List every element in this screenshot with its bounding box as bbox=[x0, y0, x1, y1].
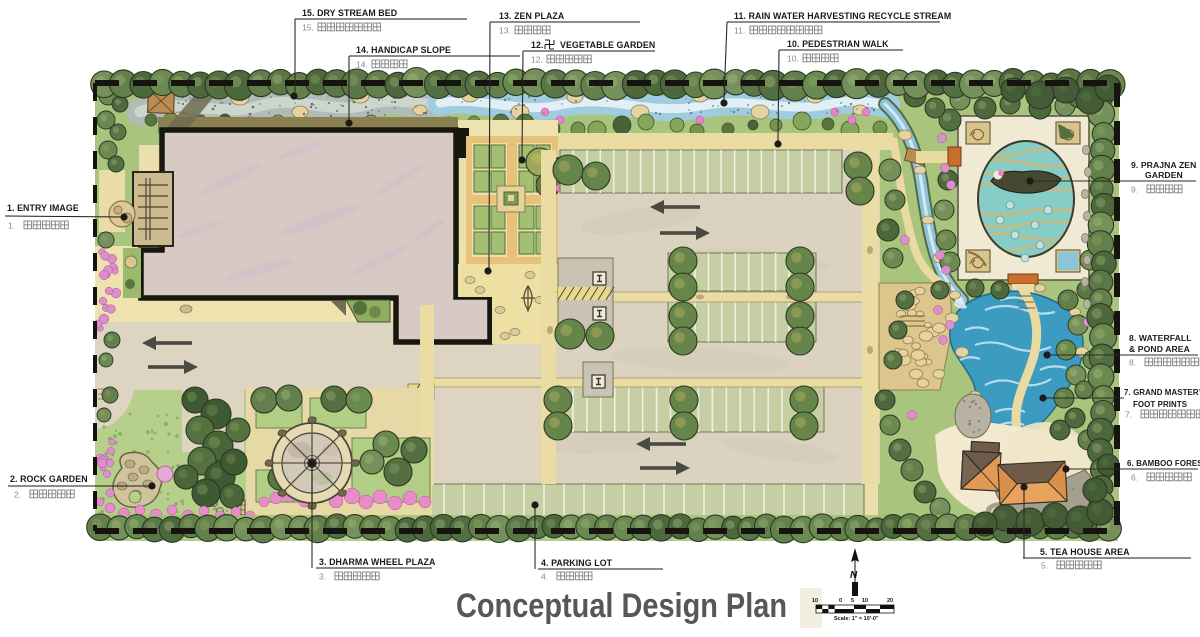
svg-text:1. ENTRY IMAGE: 1. ENTRY IMAGE bbox=[7, 203, 79, 213]
svg-text:6.: 6. bbox=[1131, 473, 1138, 483]
svg-text:15. DRY STREAM BED: 15. DRY STREAM BED bbox=[302, 8, 397, 18]
svg-text:& POND AREA: & POND AREA bbox=[1129, 344, 1190, 354]
svg-text:N: N bbox=[850, 570, 858, 581]
svg-text:Conceptual Design Plan: Conceptual Design Plan bbox=[456, 587, 787, 625]
svg-text:11. RAIN WATER HARVESTING RECY: 11. RAIN WATER HARVESTING RECYCLE STREAM bbox=[734, 11, 951, 21]
svg-text:10.: 10. bbox=[787, 54, 799, 64]
svg-text:2.: 2. bbox=[14, 490, 21, 500]
svg-text:10. PEDESTRIAN WALK: 10. PEDESTRIAN WALK bbox=[787, 39, 889, 49]
svg-text:FOOT PRINTS: FOOT PRINTS bbox=[1133, 400, 1187, 409]
svg-text:VEGETABLE GARDEN: VEGETABLE GARDEN bbox=[560, 40, 655, 50]
svg-text:9.: 9. bbox=[1131, 185, 1138, 195]
svg-text:3. DHARMA WHEEL PLAZA: 3. DHARMA WHEEL PLAZA bbox=[319, 557, 436, 567]
svg-text:8.: 8. bbox=[1129, 358, 1136, 368]
svg-text:10: 10 bbox=[812, 598, 818, 604]
svg-text:2. ROCK GARDEN: 2. ROCK GARDEN bbox=[10, 474, 88, 484]
svg-text:6. BAMBOO FOREST: 6. BAMBOO FOREST bbox=[1127, 459, 1200, 468]
svg-text:GARDEN: GARDEN bbox=[1145, 170, 1183, 180]
svg-text:4.: 4. bbox=[541, 572, 548, 582]
svg-text:12.: 12. bbox=[531, 40, 544, 50]
svg-text:5.: 5. bbox=[1041, 561, 1048, 571]
svg-text:7.: 7. bbox=[1125, 410, 1132, 420]
svg-text:15.: 15. bbox=[302, 23, 314, 33]
svg-text:5: 5 bbox=[851, 598, 854, 604]
svg-text:Scale: 1" = 10'-0": Scale: 1" = 10'-0" bbox=[834, 616, 879, 622]
svg-text:3.: 3. bbox=[319, 572, 326, 582]
svg-text:1.: 1. bbox=[8, 221, 15, 231]
svg-text:8. WATERFALL: 8. WATERFALL bbox=[1129, 333, 1192, 343]
svg-text:14. HANDICAP SLOPE: 14. HANDICAP SLOPE bbox=[356, 45, 451, 55]
svg-text:12.: 12. bbox=[531, 55, 543, 65]
svg-text:13.: 13. bbox=[499, 26, 511, 36]
svg-text:7. GRAND MASTER’S: 7. GRAND MASTER’S bbox=[1124, 388, 1200, 397]
svg-text:0: 0 bbox=[839, 598, 842, 604]
svg-text:4. PARKING LOT: 4. PARKING LOT bbox=[541, 558, 613, 568]
svg-text:5. TEA HOUSE AREA: 5. TEA HOUSE AREA bbox=[1040, 547, 1130, 557]
svg-text:11.: 11. bbox=[734, 26, 745, 36]
svg-text:14.: 14. bbox=[356, 60, 368, 70]
svg-text:13. ZEN PLAZA: 13. ZEN PLAZA bbox=[499, 11, 565, 21]
svg-text:20: 20 bbox=[887, 598, 893, 604]
svg-text:10: 10 bbox=[862, 598, 868, 604]
svg-text:9. PRAJNA ZEN: 9. PRAJNA ZEN bbox=[1131, 160, 1196, 170]
